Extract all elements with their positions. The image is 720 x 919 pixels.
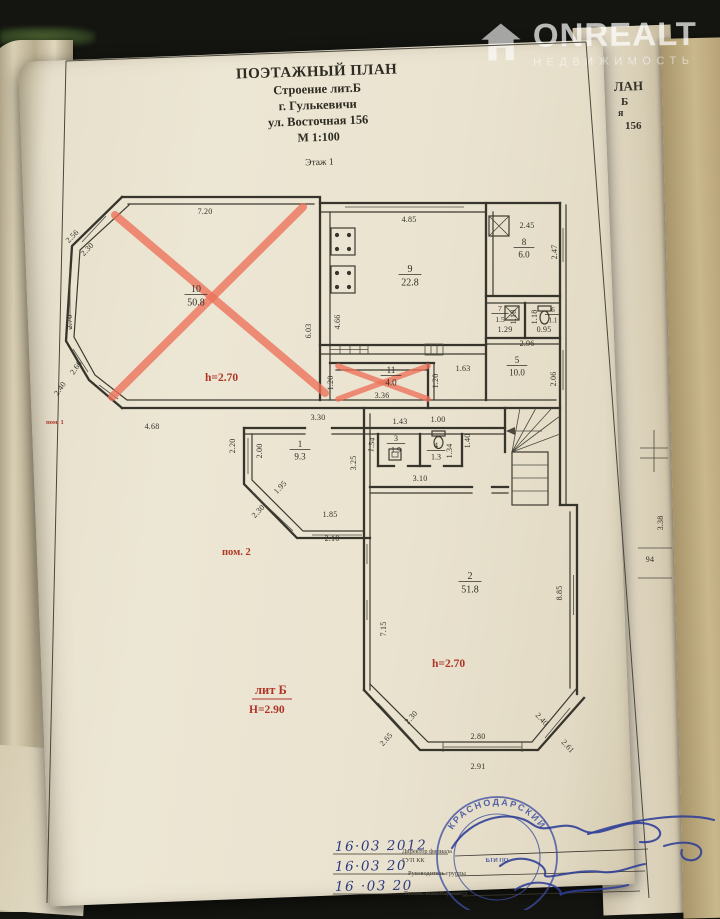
dimension-label: 2.30 [79,241,96,258]
fragment-156: 156 [625,120,642,132]
official-title-2: ГУП КК [402,857,425,864]
dimension-label: 1.63 [456,364,471,373]
dimension-label: 2.56 [64,228,81,245]
dimension-label: 3.10 [413,474,428,483]
room-number: 2 [468,571,473,582]
room-number: 1 [298,439,303,449]
red-label-pom2: пом. 2 [222,547,251,558]
dimension-label: 2.45 [520,221,535,230]
dimension-label: 2.70 [65,315,74,330]
dimension-label: 2.47 [550,245,559,260]
room-area: 9.3 [294,452,306,462]
window-symbols [70,207,574,752]
floor-plan-drawing: ЛАН Б я 156 [0,0,720,910]
dimension-label: 8.85 [555,586,564,601]
dimension-label: 2.30 [403,709,420,726]
dimension-label: 2.20 [228,439,237,454]
dimension-label: 1.20 [431,374,440,389]
under-page-dimension-label: 94 [646,555,654,564]
dimension-label: 1.95 [272,479,289,496]
room-number: 11 [387,365,396,375]
room-area: 10.0 [509,368,525,378]
vent-shaft-icon [489,216,509,236]
dimension-label: 2.91 [471,762,486,771]
dimension-label: 4.85 [402,215,417,224]
dimension-label: 7.20 [198,207,213,216]
dimension-label: 2.61 [560,738,577,755]
room-area: 1.1 [549,317,558,325]
dimension-label: 2.10 [325,534,340,543]
room-area: 1.3 [431,453,441,462]
dimension-label: 2.00 [255,444,264,459]
official-title-4: Техник-инвентаризатор [404,890,467,897]
red-label-liter: лит Б [255,683,287,697]
room-number: 5 [515,355,520,365]
sheet-frame [47,42,649,903]
red-label-pom1: пом. 1 [46,419,64,426]
dimension-label: 1.20 [326,376,335,391]
date-row-2: 16·03 20 [335,858,407,875]
signatures [452,816,714,895]
room-number: 6 [551,306,555,314]
red-label-height-room10: h=2.70 [205,372,238,384]
fragment-plan: ЛАН [614,78,644,94]
dimension-label: 2.40 [534,711,551,728]
dimension-label: 1.85 [323,510,338,519]
official-title-1: Директор филиала [402,848,452,855]
under-page-title-fragments: ЛАН Б я 156 [614,78,644,132]
dimension-label: 1.34 [445,444,454,459]
dimension-label: 1.00 [431,415,446,424]
outer-walls [66,197,584,750]
dimension-label: 1.54 [366,437,377,453]
stair-direction-arrow [506,427,515,435]
dimension-label: 0.95 [537,325,552,334]
dimension-label: 2.96 [520,339,535,348]
stamp-block: 16·03 2012 16·03 20 16 ·03 20 Директор ф… [333,797,714,910]
dimension-label: 4.68 [145,422,160,431]
room-area: 1.9 [391,446,401,455]
room-area: 51.8 [461,585,479,596]
room-number: 9 [408,264,413,275]
fragment-ya: я [618,108,624,119]
dimension-label: 1.18 [509,310,518,325]
dimension-label: 1.29 [498,325,513,334]
room-number: 8 [522,237,527,247]
room-area: 1.5 [495,315,505,324]
room-number: 7 [498,304,502,313]
red-label-total-height: Н=2.90 [249,704,285,716]
room-area: 4.0 [385,378,397,388]
dimension-label: 1.40 [463,434,472,449]
red-label-height-room2: h=2.70 [432,658,465,670]
room-area: 50.8 [187,298,205,309]
staircase-symbol [506,408,560,505]
dimension-label: 2.40 [52,380,68,397]
room-area: 6.0 [518,250,530,260]
dimension-label: 7.15 [379,622,388,637]
dimension-labels: 7.202.562.302.702.602.404.686.034.664.85… [52,207,576,771]
room-area: 22.8 [401,278,419,289]
dimension-label: 2.80 [471,732,486,741]
fragment-lit: Б [621,96,628,108]
dimension-label: 3.36 [375,391,390,400]
room-number: 3 [394,434,398,443]
dimension-label: 3.30 [311,413,326,422]
under-page-dimension-labels: 3.3894 [646,516,665,564]
room-number: 10 [191,284,201,295]
dimension-label: 6.03 [304,324,313,339]
room-number: 4 [434,441,438,450]
dimension-label: 2.65 [378,731,395,748]
dimension-label: 1.18 [530,310,539,325]
dimension-label: 2.06 [549,372,558,387]
red-cross-room10 [112,207,325,397]
dimension-label: 3.25 [349,456,358,471]
date-row-3: 16 ·03 20 [335,878,413,895]
dimension-label: 4.66 [333,315,342,330]
under-page-fragment-lines [638,430,672,578]
dimension-label: 1.43 [393,417,408,426]
stove-icon [331,228,355,293]
under-page-dimension-label: 3.38 [656,516,665,531]
